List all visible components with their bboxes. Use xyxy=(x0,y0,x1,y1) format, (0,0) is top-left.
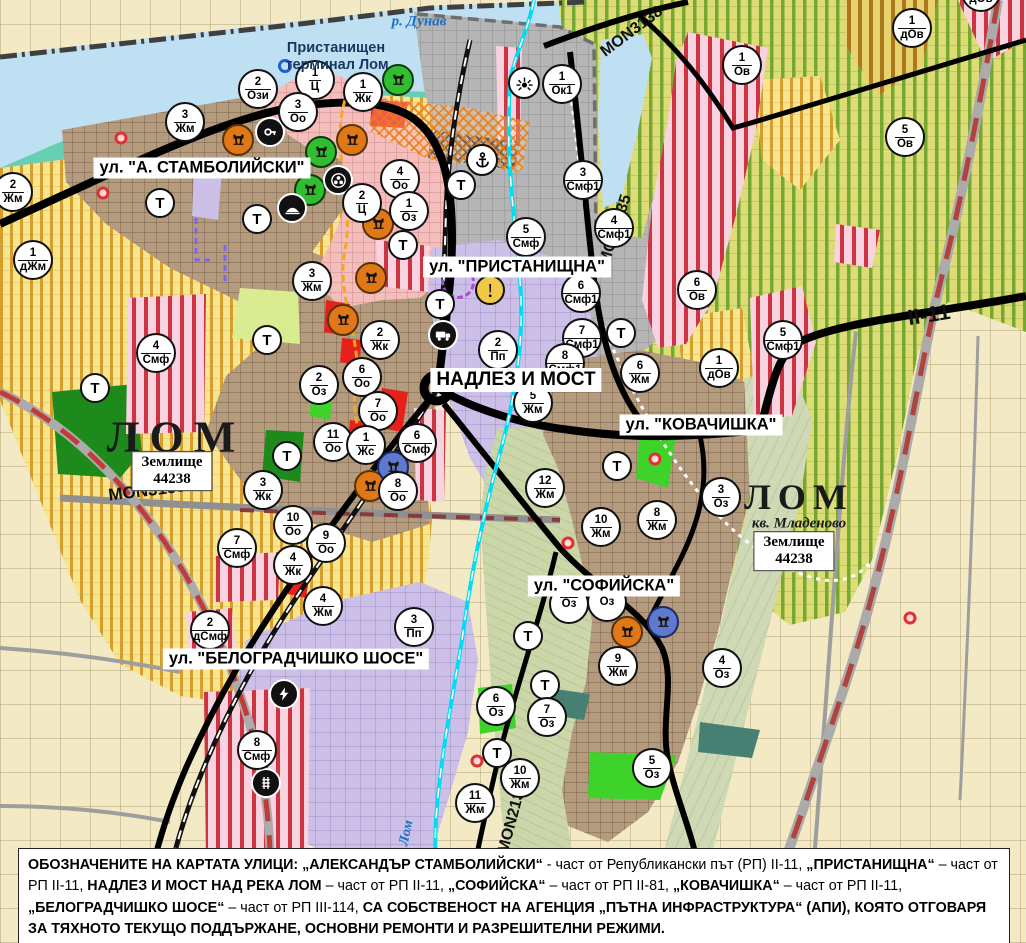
zone-marker: 5Смф xyxy=(506,217,546,257)
zone-marker-code: Смф xyxy=(242,750,273,763)
zone-marker: 6Смф1 xyxy=(561,273,601,313)
zone-marker-number: 12 xyxy=(537,475,554,487)
zone-marker-number: 1 xyxy=(404,198,414,210)
road-ii-11 xyxy=(760,296,1026,430)
zone-marker-code: Оо xyxy=(352,377,372,390)
transformer-marker: Т xyxy=(80,373,110,403)
zone-marker-number: 1 xyxy=(714,355,724,367)
zone-marker-number: 2 xyxy=(357,190,367,202)
warning-icon xyxy=(475,275,505,305)
boundary-east-red-dash xyxy=(758,0,998,943)
poi-dot xyxy=(904,612,917,625)
zone-marker-code: Оз xyxy=(538,717,557,730)
note-segment: – част от РП II-11, xyxy=(780,878,902,894)
zone-marker: 6Ов xyxy=(677,270,717,310)
zone-marker-number: 4 xyxy=(717,655,727,667)
zone-marker: 2Ози xyxy=(238,69,278,109)
zone-marker: 5Смф1 xyxy=(763,320,803,360)
zone-marker-code: Оз xyxy=(560,597,579,610)
zone-marker-number: 1 xyxy=(28,247,38,259)
zone-marker-code: Жм xyxy=(174,122,197,135)
zone-marker-code: Жк xyxy=(370,340,390,353)
land-registry-box: Землище44238 xyxy=(131,451,212,491)
rail-crossing-icon xyxy=(251,768,281,798)
zone-marker: 12Жм xyxy=(525,468,565,508)
land-registry-number: 44238 xyxy=(141,471,202,488)
sun-icon xyxy=(508,67,540,99)
zone-marker: 2Пп xyxy=(478,330,518,370)
zone-marker-number: 6 xyxy=(635,360,645,372)
zone-marker-code: Жк xyxy=(283,565,303,578)
zone-marker-code: Жм xyxy=(464,803,487,816)
zone-marker-code: Ов xyxy=(895,137,915,150)
monument-column-icon xyxy=(336,124,368,156)
zone-marker: 2Оз xyxy=(299,365,339,405)
note-segment-bold: „СОФИЙСКА“ xyxy=(448,878,546,894)
street-label: ул. "А. СТАМБОЛИЙСКИ" xyxy=(94,158,311,179)
zone-marker-code: Пп xyxy=(404,627,423,640)
port-boundary-dash xyxy=(417,14,596,232)
zone-marker-number: 1 xyxy=(557,71,567,83)
zone-marker: 1Оз xyxy=(389,191,429,231)
note-segment-bold: „ПРИСТАНИЩНА“ xyxy=(806,857,934,873)
zone-marker: 3Жк xyxy=(243,470,283,510)
transformer-marker: Т xyxy=(242,204,272,234)
zone-marker-code: Оз xyxy=(712,497,731,510)
port-terminal-line1: Пристанищен xyxy=(287,40,385,56)
zone-marker-code: Жм xyxy=(534,488,557,501)
zone-marker: 1дОв xyxy=(699,348,739,388)
zone-marker-number: 1 xyxy=(361,432,371,444)
zone-marker: 7Оз xyxy=(527,697,567,737)
zone-marker-number: 3 xyxy=(307,268,317,280)
transformer-marker: Т xyxy=(252,325,282,355)
zone-marker-code: Ок1 xyxy=(549,84,574,97)
zone-marker-number: 2 xyxy=(375,327,385,339)
zone-marker-number: 3 xyxy=(409,614,419,626)
zone-marker: 8Жм xyxy=(637,500,677,540)
zone-marker-code: дОв xyxy=(967,0,994,5)
zone-marker-number: 6 xyxy=(491,693,501,705)
zone-marker-code: Ц xyxy=(309,80,321,93)
zone-marker-code: Оо xyxy=(288,112,308,125)
zone-marker-code: Жм xyxy=(312,606,335,619)
boundary-east-grey xyxy=(758,0,998,943)
note-segment-bold: НАДЛЕЗ И МОСТ НАД РЕКА ЛОМ xyxy=(87,878,321,894)
zone-marker-code: Жм xyxy=(646,520,669,533)
zone-marker-number: 8 xyxy=(252,737,262,749)
legend-note: ОБОЗНАЧЕНИТЕ НА КАРТАТА УЛИЦИ: „АЛЕКСАНД… xyxy=(18,848,1010,943)
zone-marker-code: Жм xyxy=(522,403,545,416)
note-segment: - част от Републикански път (РП) II-11, xyxy=(543,857,807,873)
note-segment-bold: ОБОЗНАЧЕНИТЕ НА КАРТАТА УЛИЦИ: „АЛЕКСАНД… xyxy=(28,857,543,873)
land-registry-number: 44238 xyxy=(763,551,824,568)
zone-marker-code: Жм xyxy=(629,373,652,386)
zone-marker-code: Оз xyxy=(643,768,662,781)
poi-dot xyxy=(562,537,575,550)
zone-marker: 2Жк xyxy=(360,320,400,360)
zone-marker: 4Смф xyxy=(136,333,176,373)
zone-marker-number: 1 xyxy=(907,15,917,27)
transformer-marker: Т xyxy=(446,170,476,200)
zone-marker: 3Жм xyxy=(292,261,332,301)
zone-marker: 1Ок1 xyxy=(542,64,582,104)
zone-marker-number: 10 xyxy=(285,512,302,524)
zone-marker-number: 3 xyxy=(180,109,190,121)
poi-dot xyxy=(649,453,662,466)
zone-marker: 6Смф xyxy=(397,423,437,463)
zone-marker: 3Оо xyxy=(278,92,318,132)
zone-marker: 6Жм xyxy=(620,353,660,393)
zone-marker-number: 2 xyxy=(8,179,18,191)
zone-marker-number: 7 xyxy=(232,535,242,547)
land-registry-title: Землище xyxy=(141,454,202,471)
road-grey-sw-2 xyxy=(0,806,170,822)
zone-marker-number: 3 xyxy=(293,99,303,111)
zone-marker: 8Смф xyxy=(237,730,277,770)
zone-marker: 1дЖм xyxy=(13,240,53,280)
zone-marker-number: 8 xyxy=(393,478,403,490)
zone-marker-number: 6 xyxy=(357,364,367,376)
zone-marker: 4Смф1 xyxy=(594,208,634,248)
zone-marker-code: Жк xyxy=(353,92,373,105)
zone-marker-number: 5 xyxy=(900,124,910,136)
zone-marker-code: Оз xyxy=(400,211,419,224)
zone-marker-code: Оо xyxy=(388,491,408,504)
zone-marker-code: дСмф xyxy=(191,630,229,643)
zone-marker-code: Жм xyxy=(2,192,25,205)
note-segment: – част от РП II-81, xyxy=(546,878,673,894)
zone-marker-number: 5 xyxy=(647,755,657,767)
zone-marker: 3Жм xyxy=(165,102,205,142)
river-danube: р. Дунав xyxy=(392,14,447,31)
zone-marker-number: 3 xyxy=(578,167,588,179)
zone-marker: 2Ц xyxy=(342,183,382,223)
zone-marker: 6Оз xyxy=(476,686,516,726)
street-label: ул. "БЕЛОГРАДЧИШКО ШОСЕ" xyxy=(163,649,429,670)
road-mon3138-b xyxy=(640,16,1026,128)
port-terminal-line2: терминал Лом xyxy=(285,57,388,73)
zone-marker: 1дОв xyxy=(892,8,932,48)
zone-marker: 8Оо xyxy=(378,471,418,511)
zone-marker-number: 11 xyxy=(467,790,483,802)
zone-marker-code: Оз xyxy=(713,668,732,681)
zone-marker-code: Оо xyxy=(323,442,343,455)
zone-marker-number: 2 xyxy=(493,337,503,349)
zone-marker-number: 7 xyxy=(577,325,587,337)
zone-marker-code: Оо xyxy=(316,543,336,556)
monument-column-icon xyxy=(647,606,679,638)
zone-marker-number: 4 xyxy=(151,340,161,352)
zone-marker-number: 6 xyxy=(576,280,586,292)
zone-marker-number: 3 xyxy=(716,484,726,496)
zone-marker-number: 1 xyxy=(737,52,747,64)
zone-marker-number: 4 xyxy=(318,593,328,605)
zone-marker-number: 7 xyxy=(373,398,383,410)
street-label: ул. "КОВАЧИШКА" xyxy=(620,415,783,436)
zone-marker-code: Оо xyxy=(368,411,388,424)
zone-marker-code: Смф xyxy=(402,443,433,456)
zone-marker-code: Оз xyxy=(598,595,617,608)
zone-marker-number: 2 xyxy=(314,372,324,384)
zone-marker-code: Жк xyxy=(253,490,273,503)
note-segment-bold: „КОВАЧИШКА“ xyxy=(673,878,780,894)
zone-marker-code: Ов xyxy=(732,65,752,78)
land-registry-box: Землище44238 xyxy=(753,531,834,571)
zone-marker-code: Смф1 xyxy=(595,228,632,241)
zone-marker-number: 1 xyxy=(358,79,368,91)
zone-marker-code: Смф xyxy=(141,353,172,366)
zone-marker-code: Пп xyxy=(488,350,507,363)
anchor-icon xyxy=(466,144,498,176)
zone-marker-number: 9 xyxy=(613,653,623,665)
transformer-marker: Т xyxy=(606,318,636,348)
transformer-marker: Т xyxy=(388,230,418,260)
zone-marker-code: Ози xyxy=(245,89,271,102)
zone-marker-number: 11 xyxy=(325,429,341,441)
zone-marker: 10Жм xyxy=(500,758,540,798)
zone-marker-code: дЖм xyxy=(18,260,48,273)
transformer-marker: Т xyxy=(513,621,543,651)
zone-marker-number: 6 xyxy=(412,430,422,442)
monument-column-icon xyxy=(355,262,387,294)
monument-column-icon xyxy=(327,304,359,336)
zone-marker-code: Жс xyxy=(356,445,377,458)
note-segment: – част от РП III-114, xyxy=(224,900,362,916)
zone-marker: 5Оз xyxy=(632,748,672,788)
zone-marker-code: Оо xyxy=(283,525,303,538)
zone-marker-code: Жм xyxy=(607,666,630,679)
zone-marker-number: 5 xyxy=(778,327,788,339)
note-segment: – част от РП II-11, xyxy=(322,878,448,894)
zone-marker: 4Жк xyxy=(273,545,313,585)
zone-marker: 2дСмф xyxy=(190,610,230,650)
zone-marker-code: Жм xyxy=(301,281,324,294)
zone-marker-code: Смф1 xyxy=(564,180,601,193)
zone-marker: 10Жм xyxy=(581,507,621,547)
zone-marker-number: 4 xyxy=(395,166,405,178)
zoning-map-lom: ОБОЗНАЧЕНИТЕ НА КАРТАТА УЛИЦИ: „АЛЕКСАНД… xyxy=(0,0,1026,943)
zone-marker-number: 10 xyxy=(512,765,529,777)
zone-marker: 4Оз xyxy=(702,648,742,688)
zone-marker-number: 2 xyxy=(205,617,215,629)
zone-marker-number: 2 xyxy=(253,76,263,88)
note-segment-bold: „БЕЛОГРАДЧИШКО ШОСЕ“ xyxy=(28,900,224,916)
land-registry-title: Землище xyxy=(763,534,824,551)
zone-marker-code: Смф1 xyxy=(562,293,599,306)
transformer-marker: Т xyxy=(145,188,175,218)
zone-marker: 11Жм xyxy=(455,783,495,823)
zone-marker: 3Смф1 xyxy=(563,160,603,200)
zone-marker-code: Смф1 xyxy=(764,340,801,353)
zone-marker-code: Ов xyxy=(687,290,707,303)
zone-marker: 9Оо xyxy=(306,523,346,563)
zone-marker-number: 4 xyxy=(288,552,298,564)
zone-marker-number: 8 xyxy=(652,507,662,519)
zone-marker-code: дОв xyxy=(898,28,925,41)
zone-marker: 3Пп xyxy=(394,607,434,647)
lightning-icon xyxy=(269,679,299,709)
truck-icon xyxy=(428,320,458,350)
zone-marker-code: Оз xyxy=(310,385,329,398)
transformer-marker: Т xyxy=(425,289,455,319)
road-grey-sw-1 xyxy=(0,648,180,672)
zone-marker: 1Ов xyxy=(722,45,762,85)
poi-dot xyxy=(115,132,128,145)
street-label: ул. "ПРИСТАНИЩНА" xyxy=(423,257,611,278)
zone-marker-code: Оз xyxy=(487,706,506,719)
zone-marker-number: 7 xyxy=(542,704,552,716)
city-lom-east: ЛОМ xyxy=(744,476,854,518)
zone-marker-code: Оо xyxy=(390,179,410,192)
street-label: ул. "СОФИЙСКА" xyxy=(528,576,680,597)
zone-marker: 9Жм xyxy=(598,646,638,686)
road-grey-e-2 xyxy=(960,336,978,800)
zone-marker: 1Жс xyxy=(346,425,386,465)
zone-marker: 1Жк xyxy=(343,72,383,112)
zone-marker: 4Жм xyxy=(303,586,343,626)
zone-marker-number: 3 xyxy=(258,477,268,489)
zone-marker-number: 10 xyxy=(593,514,610,526)
zone-marker: 7Смф xyxy=(217,528,257,568)
zone-marker-code: Смф xyxy=(511,237,542,250)
zone-marker-number: 4 xyxy=(609,215,619,227)
zone-marker: 5Ов xyxy=(885,117,925,157)
street-label: НАДЛЕЗ И МОСТ xyxy=(430,368,601,392)
monument-column-icon xyxy=(611,616,643,648)
violet-dashed-a xyxy=(196,218,211,260)
district-mladenovo: кв. Младеново xyxy=(752,516,846,533)
zone-marker-number: 5 xyxy=(521,224,531,236)
mound-icon xyxy=(277,193,307,223)
zone-marker-number: 9 xyxy=(321,530,331,542)
transformer-marker: Т xyxy=(602,451,632,481)
zone-marker-number: 8 xyxy=(560,350,570,362)
zone-marker-code: Жм xyxy=(509,778,532,791)
transformer-marker: Т xyxy=(530,670,560,700)
poi-dot xyxy=(97,187,110,200)
zone-marker-code: дОв xyxy=(705,368,732,381)
zone-marker-code: Смф xyxy=(222,548,253,561)
zone-marker-number: 6 xyxy=(692,277,702,289)
zone-marker-code: Ц xyxy=(356,203,368,216)
monument-column-icon xyxy=(222,124,254,156)
transformer-marker: Т xyxy=(272,441,302,471)
zone-marker: 3Оз xyxy=(701,477,741,517)
zone-marker-code: Жм xyxy=(590,527,613,540)
